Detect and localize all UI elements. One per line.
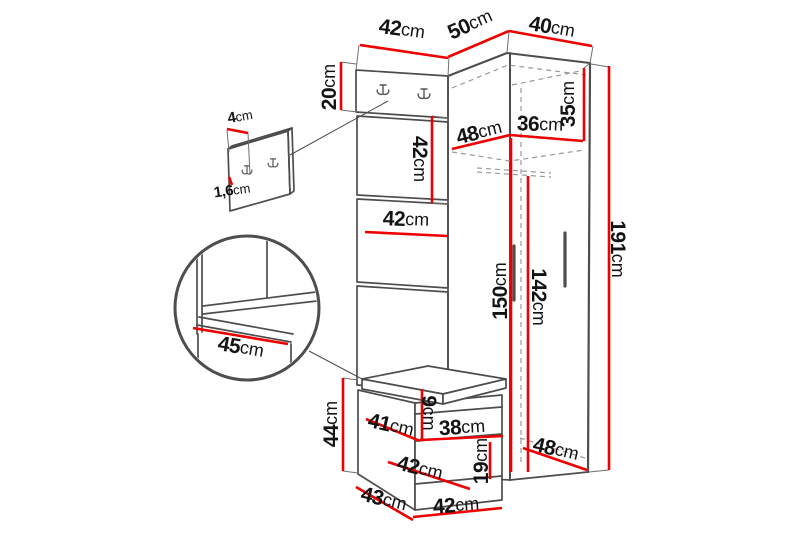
dim-seat-thickness: 9cm — [418, 395, 441, 430]
dim-hook-panel-height: 20cm — [318, 64, 341, 110]
dim-left-interior-height: 150cm — [489, 262, 512, 320]
dim-upholstery-panel-width: 42cm — [382, 207, 429, 232]
dim-right-interior-height: 142cm — [528, 268, 551, 326]
dim-bench-compartment-height: 19cm — [470, 438, 493, 484]
dim-total-height: 191cm — [607, 220, 630, 278]
dimension-diagram: 4cm 1,6cm 20cm 42cm 50cm 40cm 35cm 48cm … — [0, 0, 800, 533]
diagram-canvas: 4cm 1,6cm 20cm 42cm 50cm 40cm 35cm 48cm … — [0, 0, 800, 533]
dim-top-shelf-width: 36cm — [516, 112, 563, 137]
dim-bench-height: 44cm — [320, 401, 343, 447]
dim-bench-shelf-width: 38cm — [438, 414, 485, 439]
dim-upholstery-panel-height: 42cm — [409, 136, 432, 182]
